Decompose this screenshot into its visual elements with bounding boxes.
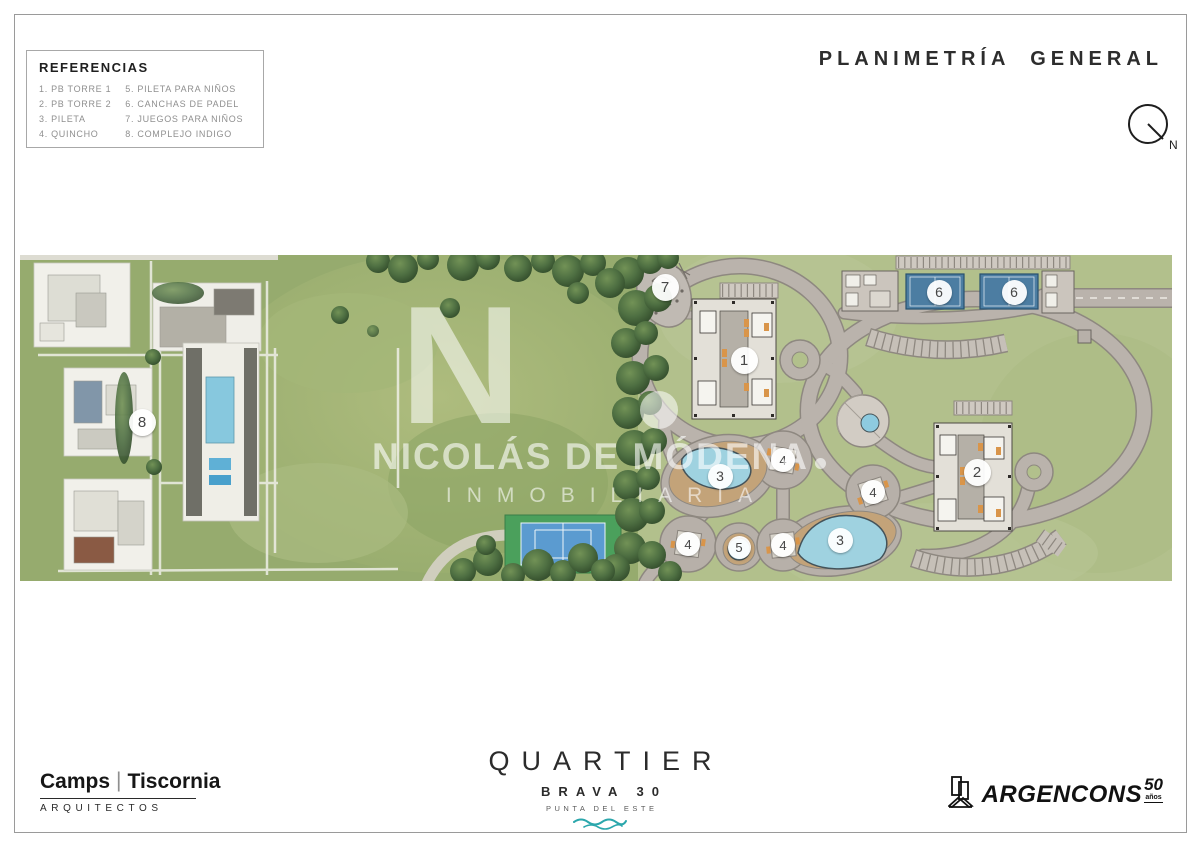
plan-markers-layer: 8716643424543 [18,253,1180,583]
legend-item-8: 8. COMPLEJO INDIGO [125,127,243,142]
legend-item-3: 3. PILETA [39,112,111,127]
plan-marker-8: 8 [129,409,156,436]
plan-marker-3: 3 [708,464,733,489]
plan-marker-1: 1 [731,347,758,374]
legend-column-2: 5. PILETA PARA NIÑOS6. CANCHAS DE PADEL7… [125,82,243,142]
page-title: PLANIMETRÍA GENERAL [819,48,1163,71]
developer-building-icon [948,775,974,814]
anniversary-number: 50 [1144,776,1163,793]
plan-marker-6: 6 [927,280,952,305]
plan-marker-4: 4 [676,532,700,556]
plan-marker-7: 7 [652,274,679,301]
legend-columns: 1. PB TORRE 12. PB TORRE 23. PILETA4. QU… [39,82,253,142]
architects-name-right: Tiscornia [128,770,221,794]
legend-item-2: 2. PB TORRE 2 [39,97,111,112]
developer-name: ARGENCONS [982,781,1143,809]
legend-item-6: 6. CANCHAS DE PADEL [125,97,243,112]
plan-marker-5: 5 [728,536,751,559]
legend-title: REFERENCIAS [39,60,253,75]
legend-column-1: 1. PB TORRE 12. PB TORRE 23. PILETA4. QU… [39,82,111,142]
architects-logo: Camps | Tiscornia ARQUITECTOS [40,770,196,814]
plan-marker-6: 6 [1002,280,1027,305]
plan-marker-4: 4 [861,480,885,504]
developer-logo: ARGENCONS 50 años [948,775,1163,814]
legend-item-1: 1. PB TORRE 1 [39,82,111,97]
north-label: N [1169,138,1178,152]
developer-anniversary: 50 años [1144,776,1163,803]
plan-marker-3: 3 [828,528,853,553]
legend-item-5: 5. PILETA PARA NIÑOS [125,82,243,97]
site-plan: 8716643424543 N NICOLÁS DE MÓDENA INMOBI… [18,253,1180,583]
architects-subtitle: ARQUITECTOS [40,803,196,814]
north-arrow-icon: N [1127,103,1183,155]
architects-separator: | [110,769,127,793]
legend-box: REFERENCIAS 1. PB TORRE 12. PB TORRE 23.… [26,50,264,148]
sheet: REFERENCIAS 1. PB TORRE 12. PB TORRE 23.… [0,0,1200,849]
legend-item-4: 4. QUINCHO [39,127,111,142]
architects-names: Camps | Tiscornia [40,770,196,799]
architects-name-left: Camps [40,770,110,794]
anniversary-label: años [1144,793,1162,803]
plan-marker-4: 4 [771,448,795,472]
legend-item-7: 7. JUEGOS PARA NIÑOS [125,112,243,127]
plan-marker-2: 2 [964,459,991,486]
plan-marker-4: 4 [771,533,795,557]
